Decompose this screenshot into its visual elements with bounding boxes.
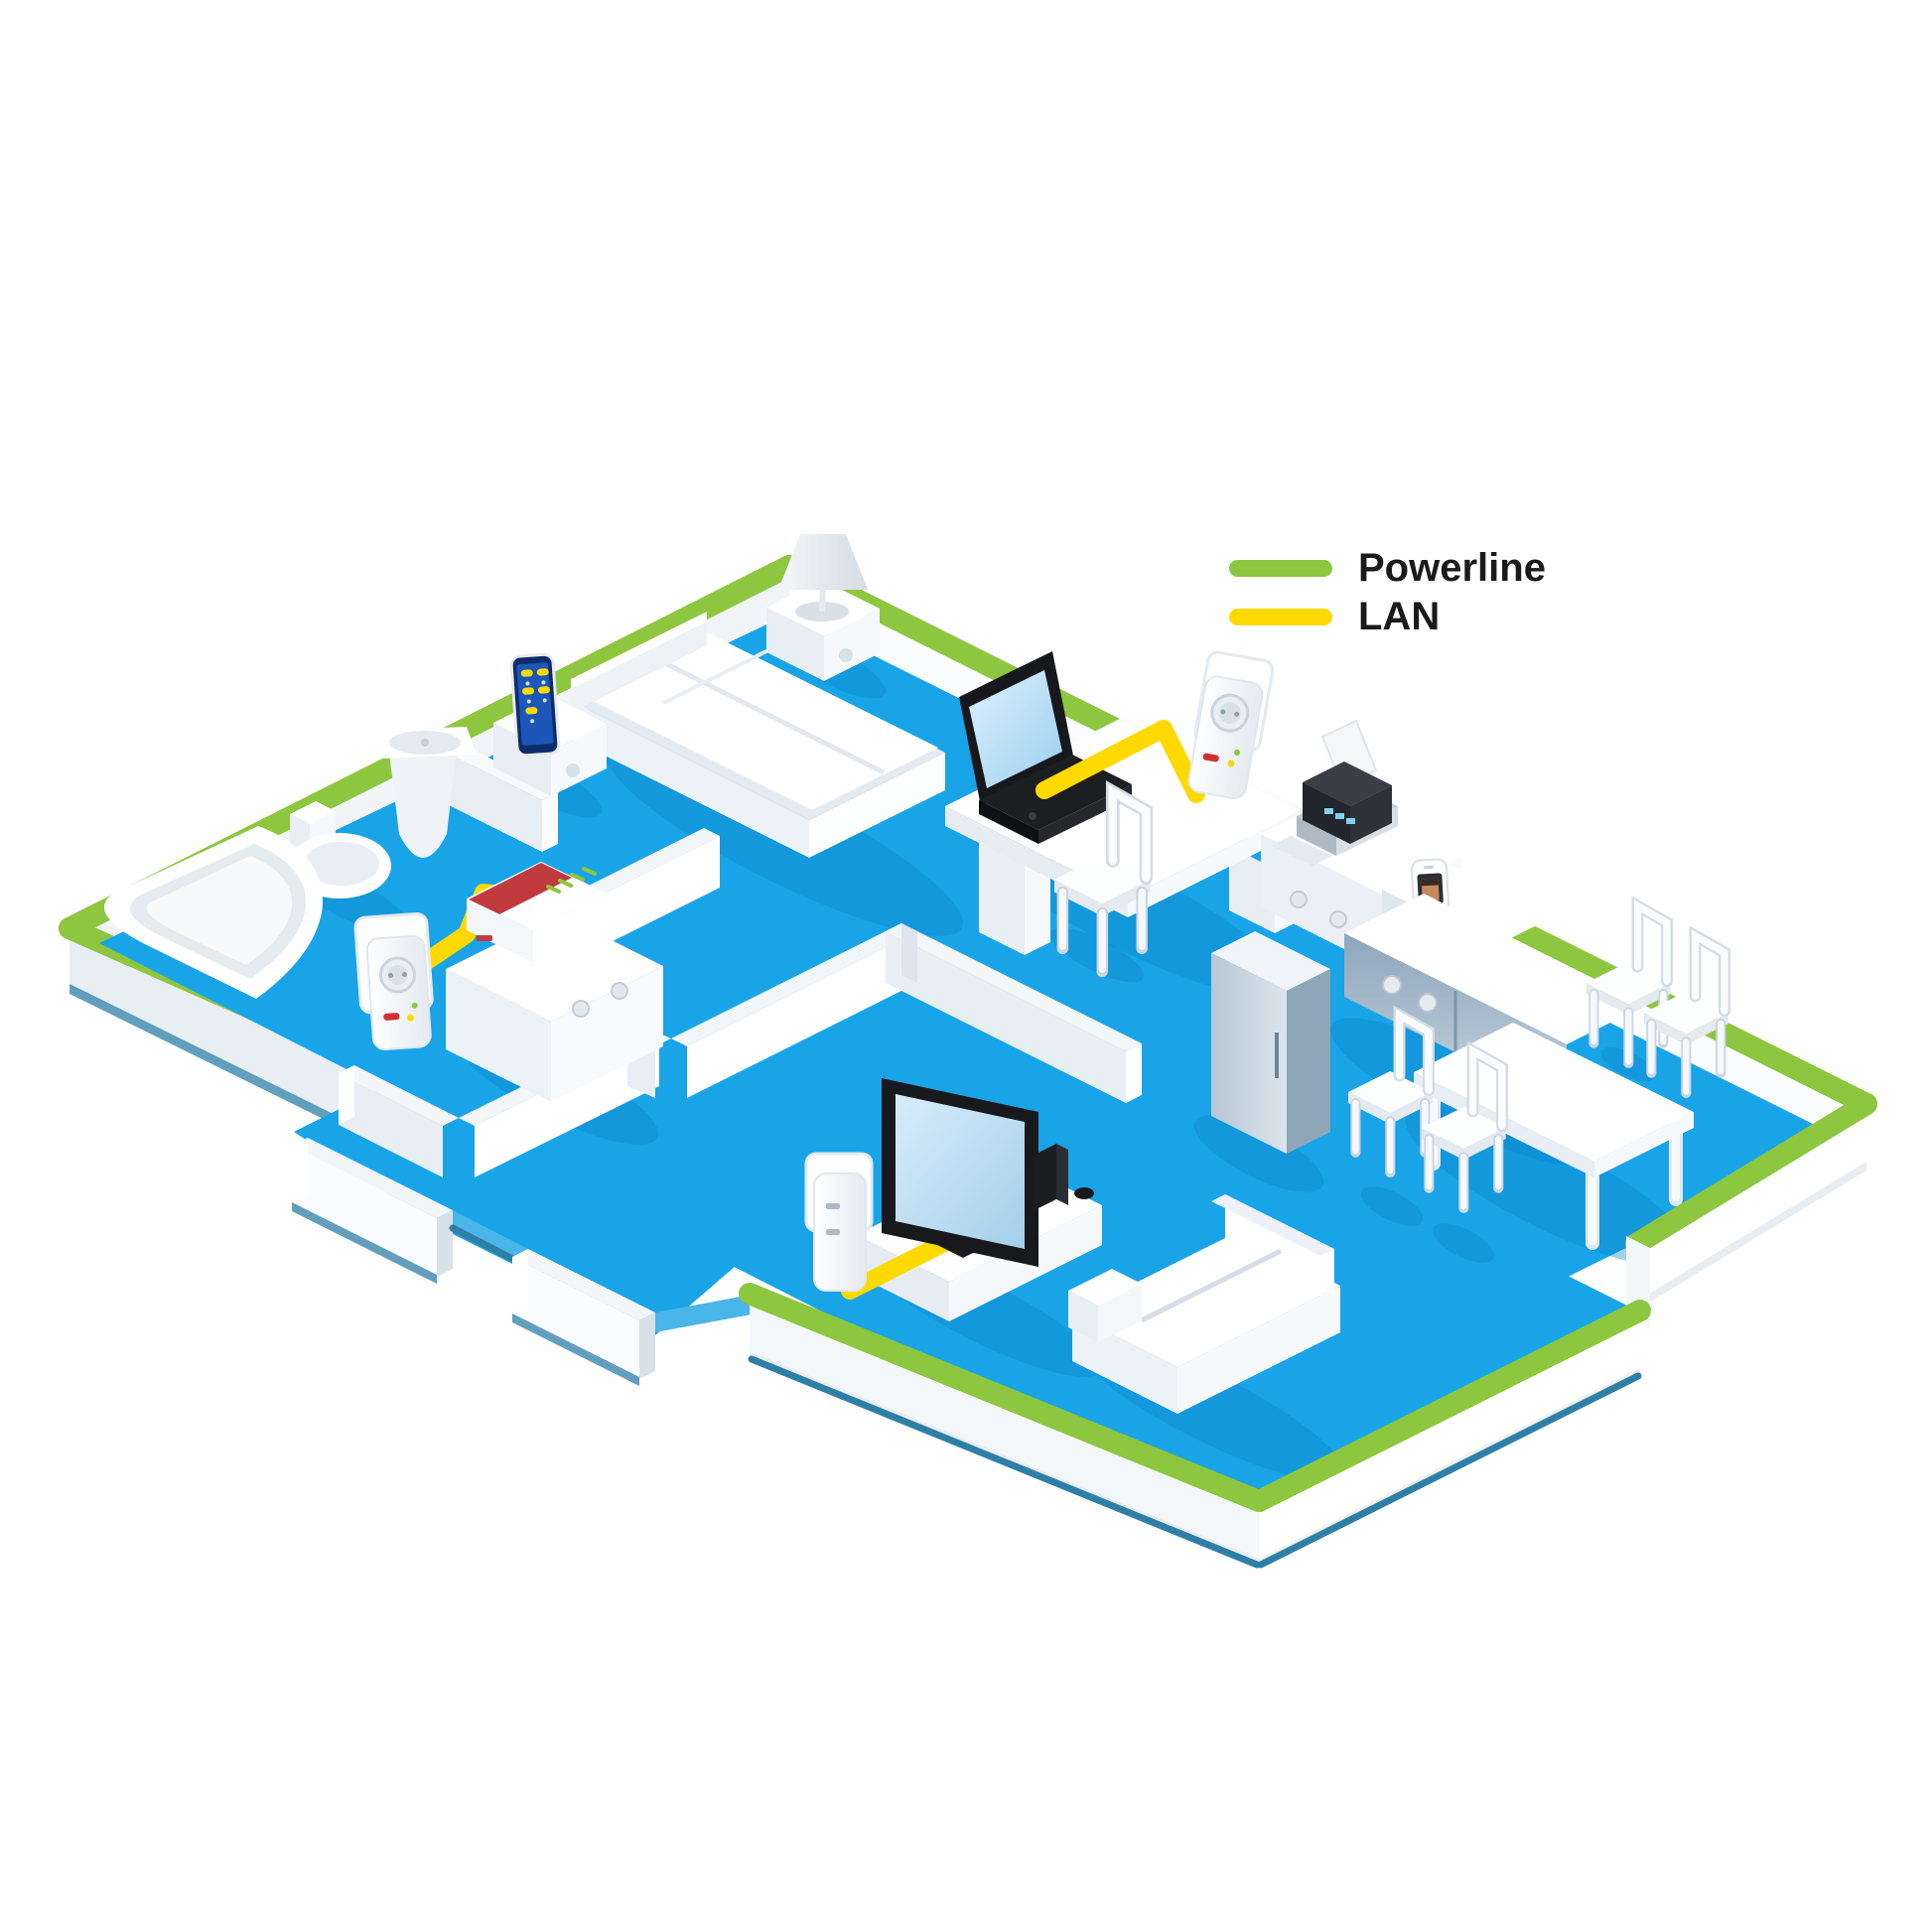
smartphone: [511, 654, 560, 757]
game-controller: [1074, 1187, 1094, 1199]
powerline-label: Powerline: [1358, 548, 1546, 588]
tall-cabinet: [1211, 931, 1330, 1154]
isometric-house-diagram: [0, 0, 1932, 1932]
adapter-status-led: [383, 1013, 399, 1021]
powerline-adapter-living-room: [806, 1154, 872, 1291]
lamp-shade: [778, 534, 868, 590]
legend-item-powerline: Powerline: [1229, 548, 1546, 588]
lan-line-icon: [1229, 609, 1332, 625]
floorplan-illustration: Powerline LAN: [0, 0, 1932, 1932]
lan-label: LAN: [1358, 597, 1440, 636]
legend-item-lan: LAN: [1229, 597, 1546, 636]
legend: Powerline LAN: [1229, 548, 1546, 636]
powerline-adapter-office-wall: [1185, 651, 1275, 801]
powerline-line-icon: [1229, 560, 1332, 577]
